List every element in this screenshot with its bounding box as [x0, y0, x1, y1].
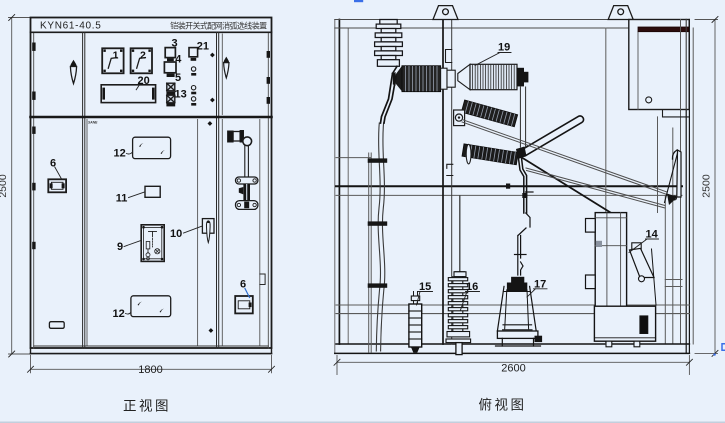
svg-text:3: 3 [172, 38, 178, 50]
svg-text:12: 12 [114, 148, 126, 160]
svg-text:正视图: 正视图 [123, 399, 171, 414]
svg-text:13: 13 [175, 89, 187, 101]
svg-text:1: 1 [113, 49, 119, 61]
svg-text:俯视图: 俯视图 [479, 398, 527, 413]
svg-text:12: 12 [113, 308, 125, 320]
svg-text:铠装开关式配网消弧选线装置: 铠装开关式配网消弧选线装置 [170, 20, 267, 30]
svg-text:4: 4 [175, 54, 182, 66]
svg-text:2: 2 [140, 49, 146, 61]
svg-text:21: 21 [197, 41, 209, 53]
svg-text:9: 9 [117, 241, 123, 253]
svg-text:KYN61-40.5: KYN61-40.5 [40, 21, 101, 32]
svg-text:SANE: SANE [88, 121, 98, 125]
svg-text:19: 19 [498, 42, 510, 54]
svg-text:2600: 2600 [501, 363, 525, 375]
svg-text:10: 10 [170, 228, 182, 240]
svg-text:5: 5 [175, 72, 181, 84]
svg-text:11: 11 [116, 193, 128, 205]
svg-text:2500: 2500 [0, 174, 9, 198]
svg-text:2500: 2500 [701, 174, 713, 198]
svg-text:1800: 1800 [138, 364, 162, 376]
